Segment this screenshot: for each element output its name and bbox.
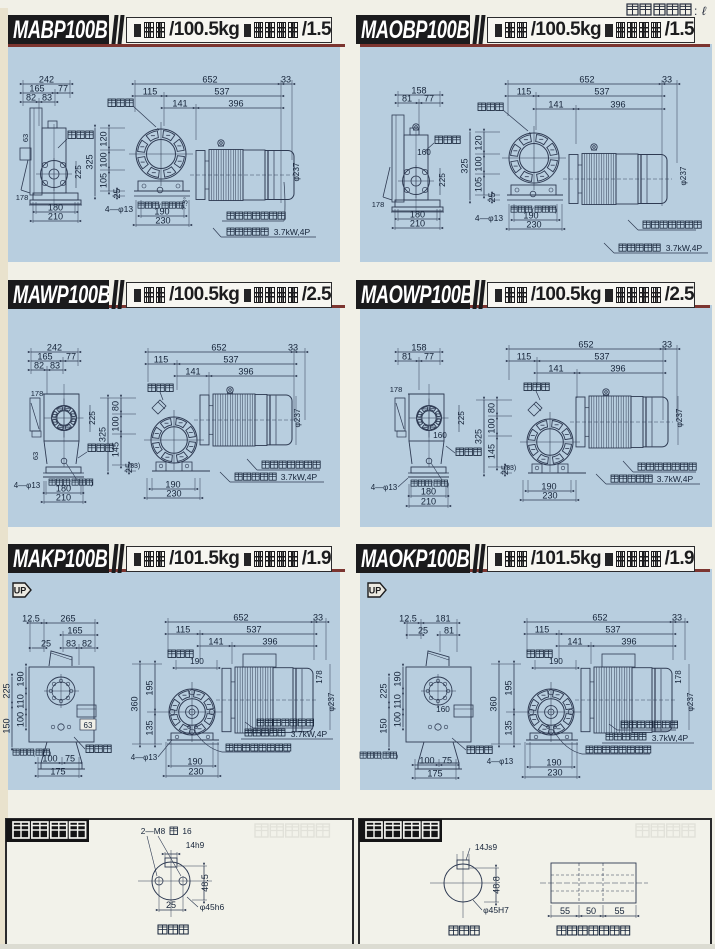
svg-text:225: 225 (438, 173, 447, 187)
svg-text:225: 225 (2, 683, 12, 698)
svg-text:(: ( (33, 750, 36, 757)
svg-text:55: 55 (560, 906, 570, 916)
svg-text:33: 33 (288, 343, 298, 353)
svg-text:230: 230 (188, 767, 203, 777)
svg-text:652: 652 (578, 340, 593, 350)
svg-text:652: 652 (202, 75, 217, 85)
svg-text:81: 81 (444, 626, 454, 636)
svg-text:82: 82 (26, 93, 36, 103)
svg-text:165: 165 (67, 626, 82, 636)
svg-text:25: 25 (487, 192, 497, 202)
svg-text:230: 230 (547, 768, 562, 778)
svg-text:265: 265 (60, 614, 75, 624)
svg-text:100: 100 (42, 754, 57, 764)
svg-text:): ) (91, 480, 93, 487)
svg-text:230: 230 (166, 489, 181, 499)
svg-text:105: 105 (474, 177, 484, 192)
svg-text:φ45H7: φ45H7 (483, 905, 509, 915)
svg-text:φ237: φ237 (292, 162, 301, 181)
svg-text:14h9: 14h9 (186, 840, 205, 850)
svg-text:537: 537 (214, 87, 229, 97)
svg-text:141: 141 (548, 364, 563, 374)
svg-text:141: 141 (208, 637, 223, 647)
svg-text:3.7kW,4P: 3.7kW,4P (291, 729, 328, 739)
svg-text:75: 75 (442, 756, 452, 766)
svg-text:115: 115 (154, 355, 169, 365)
svg-text:175: 175 (50, 767, 65, 777)
svg-text:3.7kW,4P: 3.7kW,4P (657, 474, 694, 484)
svg-text:210: 210 (48, 212, 63, 222)
svg-text:396: 396 (610, 100, 625, 110)
svg-text:115: 115 (143, 87, 158, 97)
svg-text:537: 537 (605, 625, 620, 635)
svg-text:145: 145 (111, 442, 121, 457)
svg-text:537: 537 (246, 625, 261, 635)
svg-text:4—φ13: 4—φ13 (371, 483, 398, 492)
svg-text:210: 210 (410, 219, 425, 229)
svg-text:150: 150 (379, 718, 389, 733)
svg-text:190: 190 (190, 657, 204, 666)
svg-text:4—φ13: 4—φ13 (105, 204, 133, 214)
svg-text:12.5: 12.5 (399, 614, 417, 624)
svg-text:230: 230 (542, 491, 557, 501)
svg-text:77: 77 (66, 352, 76, 362)
svg-text:652: 652 (211, 343, 226, 353)
svg-text:12.5: 12.5 (22, 614, 40, 624)
svg-text:4—φ13: 4—φ13 (475, 213, 503, 223)
svg-text:UP: UP (14, 586, 27, 596)
svg-text:14Js9: 14Js9 (475, 842, 498, 852)
svg-text:81: 81 (402, 352, 412, 362)
svg-text:325: 325 (85, 154, 95, 169)
svg-text:3.7kW,4P: 3.7kW,4P (652, 733, 689, 743)
svg-text:25: 25 (112, 188, 122, 198)
svg-text:181: 181 (435, 614, 450, 624)
svg-text:178: 178 (16, 193, 29, 202)
svg-text:110: 110 (16, 694, 26, 709)
svg-text:537: 537 (223, 355, 238, 365)
svg-text:160: 160 (433, 431, 447, 440)
svg-text:396: 396 (238, 367, 253, 377)
svg-text:80: 80 (487, 403, 497, 413)
svg-text:230: 230 (155, 216, 170, 226)
svg-text:115: 115 (517, 87, 532, 97)
svg-text:120: 120 (474, 135, 484, 150)
svg-text:77: 77 (424, 352, 434, 362)
svg-text:φ237: φ237 (293, 408, 302, 427)
svg-text:25: 25 (500, 465, 510, 475)
svg-text:φ237: φ237 (327, 692, 336, 711)
svg-text:360: 360 (489, 696, 499, 711)
svg-text:141: 141 (172, 99, 187, 109)
svg-text:178: 178 (315, 670, 324, 684)
svg-text:180: 180 (421, 487, 436, 497)
svg-text:178: 178 (372, 200, 385, 209)
svg-text:195: 195 (145, 680, 155, 695)
svg-text:190: 190 (187, 757, 202, 767)
svg-text:135: 135 (145, 720, 155, 735)
svg-text:(: ( (69, 480, 72, 487)
svg-text:396: 396 (621, 637, 636, 647)
svg-text:33: 33 (662, 75, 672, 85)
svg-text:48.5: 48.5 (200, 874, 210, 892)
svg-text:): ) (396, 753, 398, 760)
svg-text:33: 33 (313, 613, 323, 623)
svg-text:141: 141 (567, 637, 582, 647)
svg-text:33: 33 (281, 75, 291, 85)
svg-text:210: 210 (421, 497, 436, 507)
svg-text:3.7kW,4P: 3.7kW,4P (666, 243, 703, 253)
svg-text:100: 100 (99, 152, 109, 167)
svg-text:25: 25 (166, 900, 176, 910)
svg-text:160: 160 (417, 148, 431, 157)
svg-text:537: 537 (594, 352, 609, 362)
svg-text:195: 195 (504, 680, 514, 695)
svg-text:150: 150 (2, 718, 12, 733)
svg-text:25: 25 (418, 626, 428, 636)
svg-text:396: 396 (262, 637, 277, 647)
svg-text:83: 83 (66, 639, 76, 649)
svg-text:φ237: φ237 (686, 692, 695, 711)
svg-text:77: 77 (58, 84, 68, 94)
svg-text:210: 210 (56, 493, 71, 503)
svg-text:120: 120 (99, 131, 109, 146)
svg-text:225: 225 (379, 683, 389, 698)
svg-text:55: 55 (614, 906, 624, 916)
svg-text:UP: UP (369, 586, 382, 596)
svg-text:4—φ13: 4—φ13 (131, 753, 158, 762)
svg-text:175: 175 (427, 769, 442, 779)
svg-text:225: 225 (74, 165, 83, 179)
svg-text:80: 80 (111, 401, 121, 411)
svg-text:178: 178 (31, 389, 44, 398)
svg-text:25: 25 (41, 639, 51, 649)
svg-text:190: 190 (549, 657, 563, 666)
svg-text:77: 77 (424, 94, 434, 104)
svg-text:82: 82 (82, 639, 92, 649)
svg-text:33: 33 (662, 340, 672, 350)
svg-text:652: 652 (579, 75, 594, 85)
svg-text:25: 25 (124, 463, 134, 473)
svg-text:100: 100 (487, 418, 497, 433)
svg-text:100: 100 (16, 712, 26, 727)
svg-text:3.7kW,4P: 3.7kW,4P (274, 227, 311, 237)
svg-text:): ) (555, 207, 557, 214)
svg-text:83: 83 (50, 361, 60, 371)
svg-text:75: 75 (65, 754, 75, 764)
svg-text:4—φ13: 4—φ13 (487, 757, 514, 766)
svg-text:230: 230 (526, 220, 541, 230)
svg-text:178: 178 (390, 385, 403, 394)
svg-text:110: 110 (393, 694, 403, 709)
svg-text:652: 652 (233, 613, 248, 623)
svg-text:2—M8: 2—M8 (141, 826, 166, 836)
svg-text:(: ( (380, 753, 383, 760)
svg-text:33: 33 (672, 613, 682, 623)
svg-text:4—φ13: 4—φ13 (14, 481, 41, 490)
svg-text:325: 325 (98, 427, 108, 442)
svg-text:141: 141 (548, 100, 563, 110)
svg-text:135: 135 (504, 720, 514, 735)
svg-text:): ) (447, 481, 449, 488)
svg-text:63: 63 (31, 452, 40, 460)
svg-text:145: 145 (487, 444, 497, 459)
svg-text:48.8: 48.8 (492, 876, 502, 894)
svg-text:16: 16 (182, 826, 192, 836)
svg-text:100: 100 (419, 756, 434, 766)
svg-text:115: 115 (517, 352, 532, 362)
svg-text:652: 652 (592, 613, 607, 623)
svg-text:83: 83 (42, 93, 52, 103)
svg-text:160: 160 (436, 705, 450, 714)
svg-text:190: 190 (16, 671, 26, 686)
svg-text:100: 100 (393, 712, 403, 727)
svg-text:537: 537 (594, 87, 609, 97)
svg-text:396: 396 (610, 364, 625, 374)
svg-text:396: 396 (228, 99, 243, 109)
svg-text:φ237: φ237 (679, 166, 688, 185)
svg-text:225: 225 (88, 411, 97, 425)
svg-text:178: 178 (674, 670, 683, 684)
svg-text:φ237: φ237 (675, 408, 684, 427)
svg-text:50: 50 (586, 906, 596, 916)
svg-text:225: 225 (457, 411, 466, 425)
svg-text:82: 82 (34, 361, 44, 371)
svg-text:325: 325 (460, 158, 470, 173)
svg-text:115: 115 (176, 625, 191, 635)
svg-text:3.7kW,4P: 3.7kW,4P (281, 472, 318, 482)
svg-text:115: 115 (535, 625, 550, 635)
svg-text:141: 141 (185, 367, 200, 377)
svg-text:63: 63 (21, 134, 30, 142)
svg-text:360: 360 (130, 696, 140, 711)
svg-text:63: 63 (84, 721, 93, 730)
svg-text:φ45h6: φ45h6 (200, 902, 225, 912)
svg-text:190: 190 (393, 671, 403, 686)
svg-text:190: 190 (546, 758, 561, 768)
svg-text:100: 100 (111, 416, 121, 431)
svg-text:105: 105 (99, 173, 109, 188)
svg-text:81: 81 (402, 94, 412, 104)
svg-text:100: 100 (474, 156, 484, 171)
svg-text:325: 325 (474, 429, 484, 444)
